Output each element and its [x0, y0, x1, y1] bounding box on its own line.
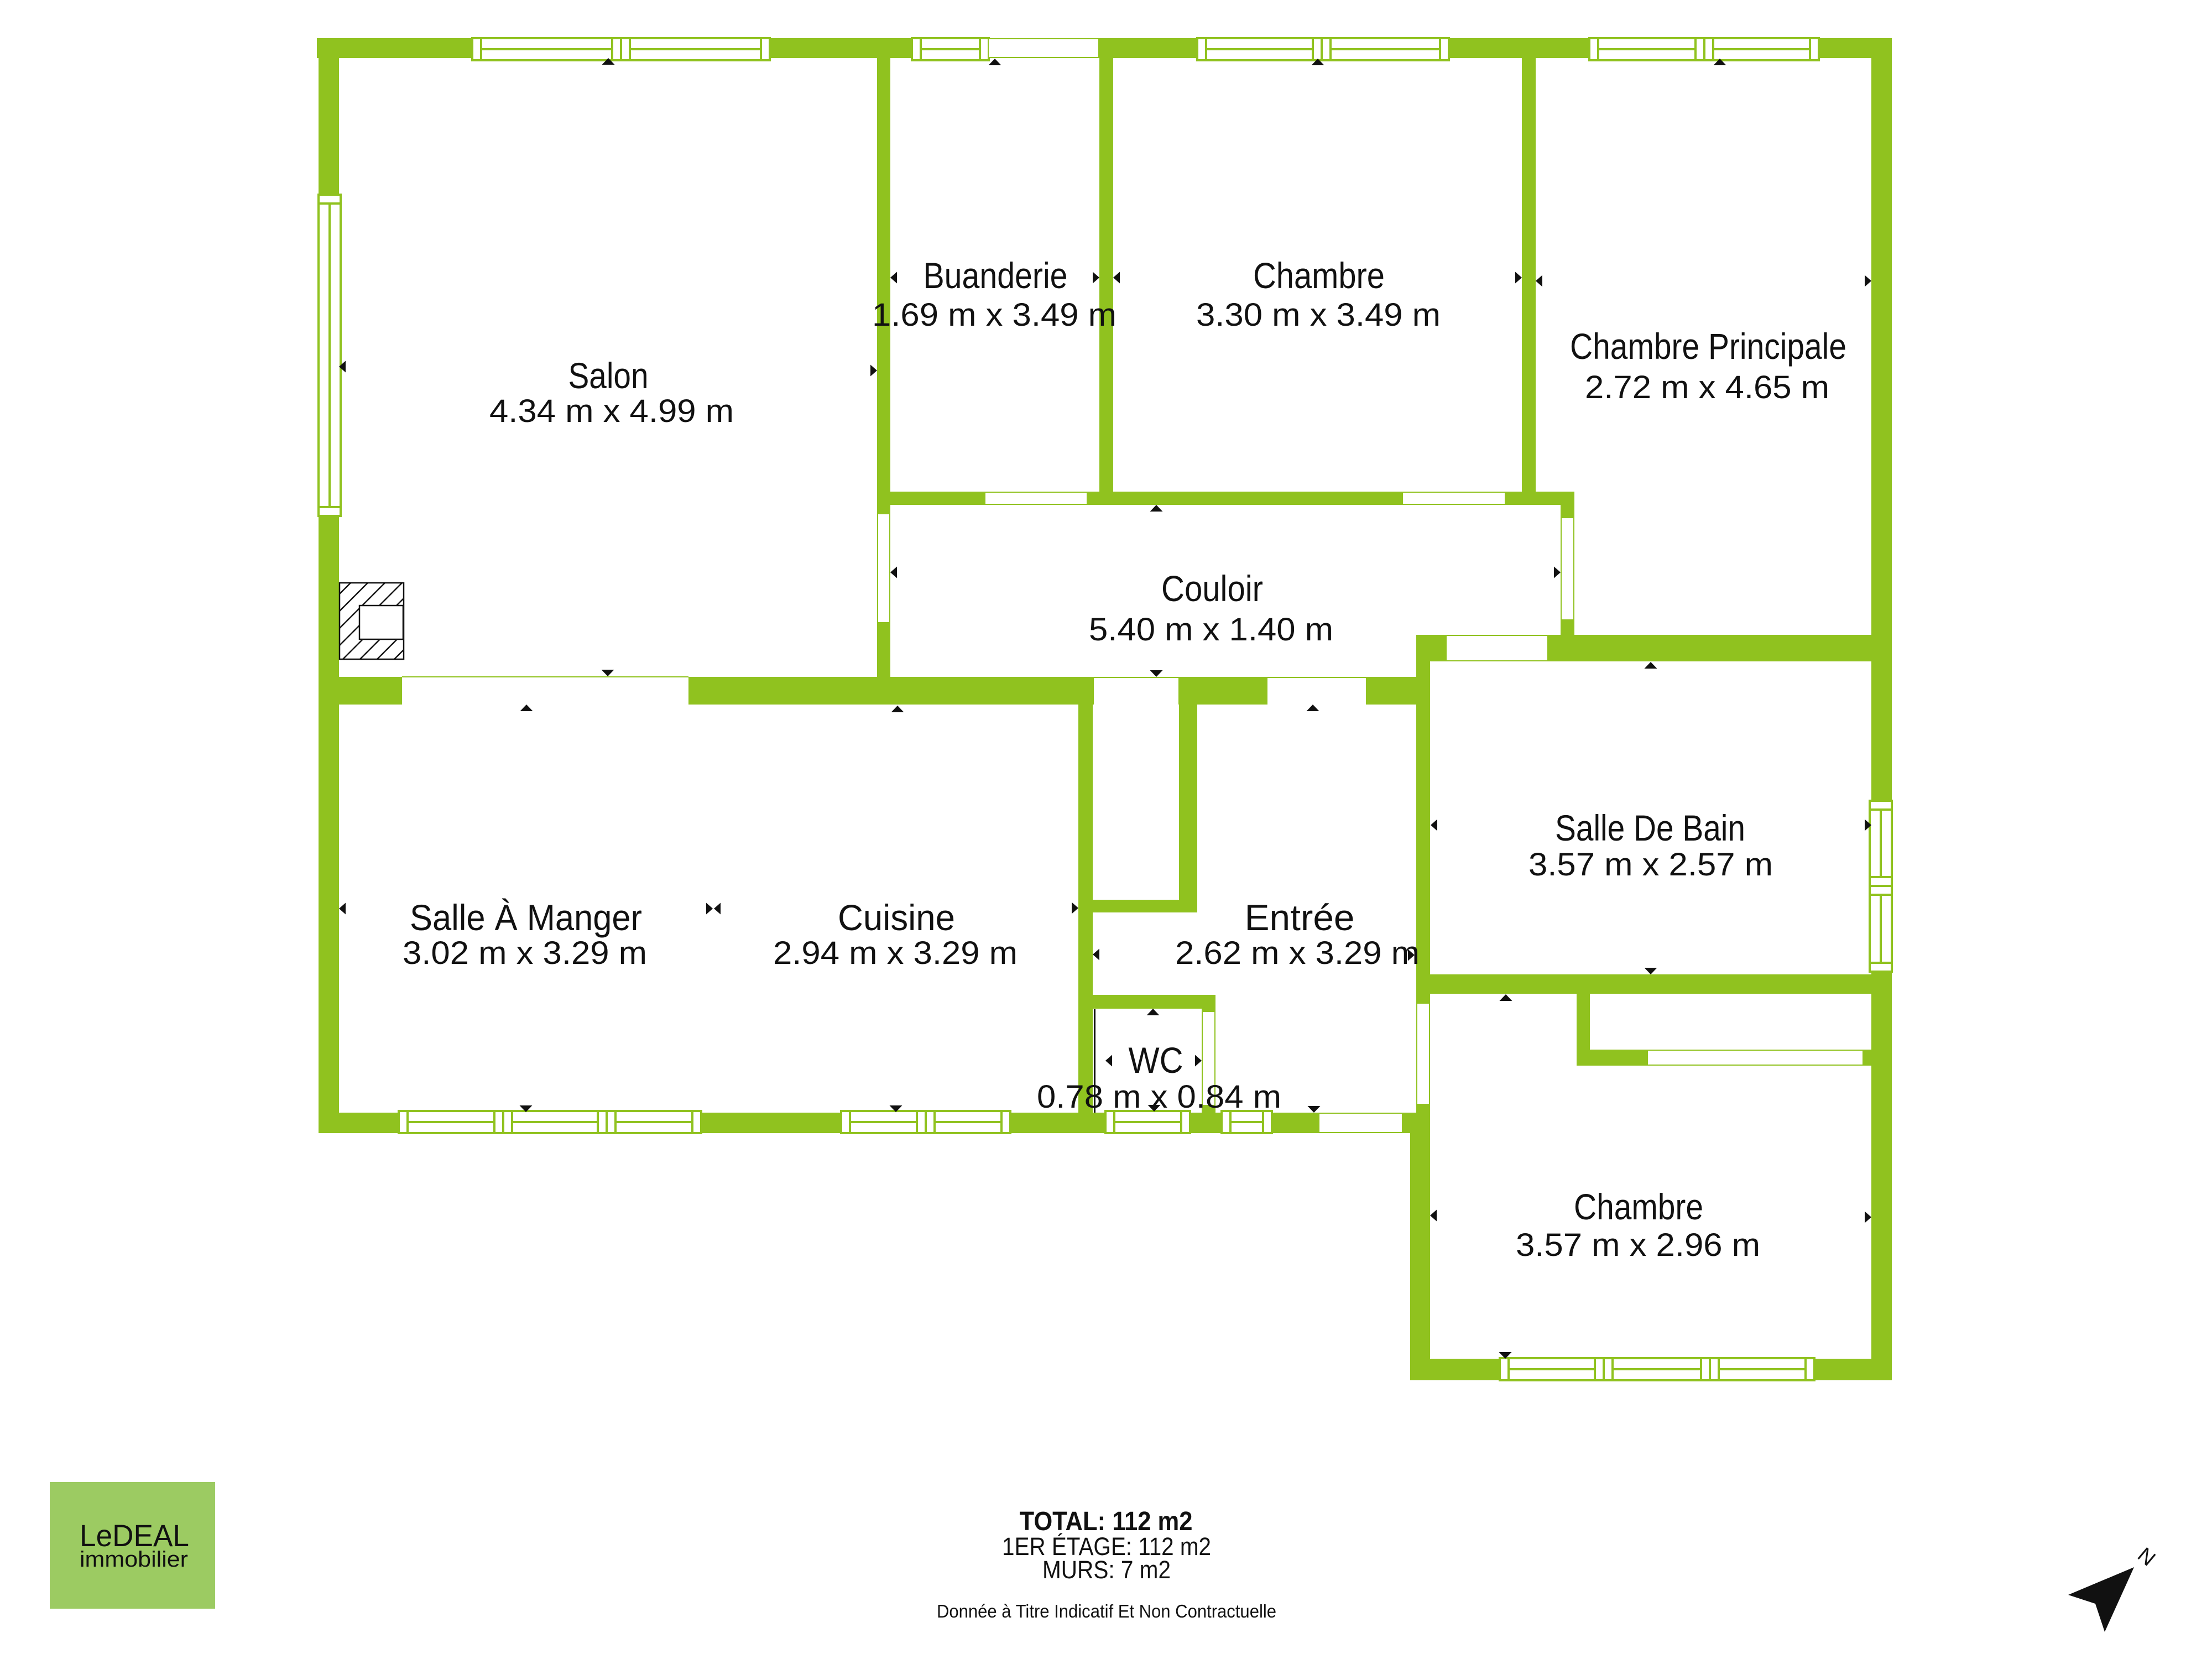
svg-text:Cuisine: Cuisine — [838, 897, 955, 938]
svg-text:2.72 m x 4.65 m: 2.72 m x 4.65 m — [1585, 369, 1829, 405]
svg-text:MURS: 7 m2: MURS: 7 m2 — [1042, 1556, 1171, 1584]
svg-text:Chambre Principale: Chambre Principale — [1570, 326, 1846, 367]
svg-text:3.02 m x 3.29 m: 3.02 m x 3.29 m — [403, 935, 647, 971]
svg-text:Couloir: Couloir — [1161, 568, 1263, 609]
svg-text:5.40 m x 1.40 m: 5.40 m x 1.40 m — [1089, 612, 1333, 648]
svg-text:Salle À Manger: Salle À Manger — [410, 897, 642, 938]
svg-text:3.30 m x 3.49 m: 3.30 m x 3.49 m — [1196, 297, 1441, 333]
svg-text:3.57 m x 2.57 m: 3.57 m x 2.57 m — [1528, 847, 1773, 883]
svg-text:Salle De Bain: Salle De Bain — [1555, 807, 1745, 848]
svg-text:2.62 m x 3.29 m: 2.62 m x 3.29 m — [1175, 935, 1420, 971]
svg-text:4.34 m x 4.99 m: 4.34 m x 4.99 m — [489, 393, 734, 429]
svg-text:Buanderie: Buanderie — [924, 255, 1068, 296]
svg-text:1.69 m x 3.49 m: 1.69 m x 3.49 m — [872, 297, 1117, 333]
svg-text:0.78 m x 0.84 m: 0.78 m x 0.84 m — [1037, 1079, 1281, 1115]
svg-text:3.57 m x 2.96 m: 3.57 m x 2.96 m — [1516, 1227, 1760, 1263]
svg-text:Salon: Salon — [568, 355, 649, 396]
svg-text:Entrée: Entrée — [1245, 897, 1355, 938]
svg-text:immobilier: immobilier — [80, 1547, 188, 1572]
svg-text:Chambre: Chambre — [1253, 255, 1385, 296]
svg-text:2.94 m x 3.29 m: 2.94 m x 3.29 m — [773, 935, 1018, 971]
svg-text:Donnée à Titre Indicatif Et No: Donnée à Titre Indicatif Et Non Contract… — [937, 1601, 1276, 1621]
svg-text:WC: WC — [1129, 1040, 1183, 1081]
svg-text:Chambre: Chambre — [1574, 1186, 1703, 1227]
